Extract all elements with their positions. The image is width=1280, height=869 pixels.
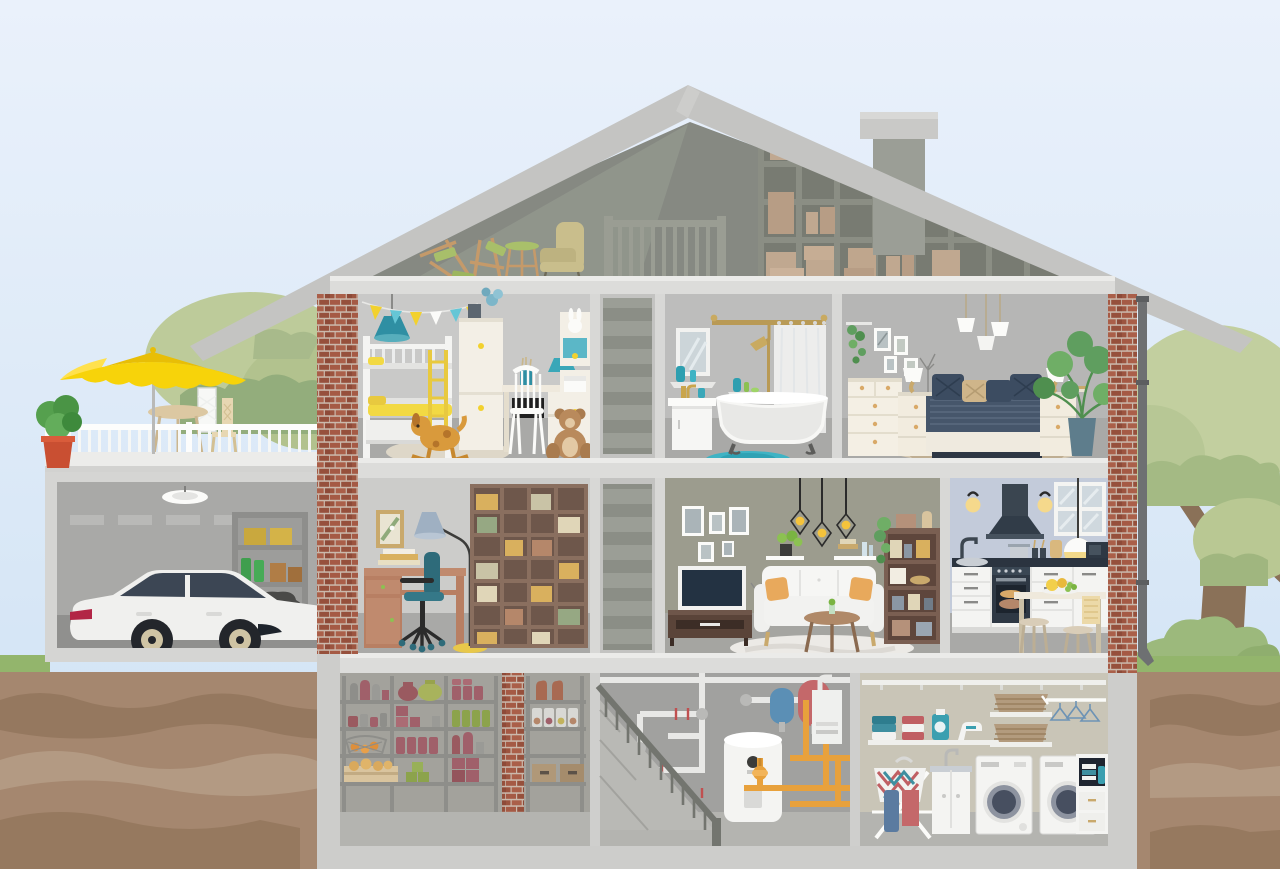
chest-of-drawers [848,378,902,456]
wall-divider [940,478,950,653]
pantry: Pantry cellar [340,673,590,846]
staircase-upper: Staircase to attic [590,294,665,458]
large-bookcase [470,484,588,648]
pillow [368,357,384,365]
orange-cushion [849,577,874,602]
wall-tv [678,566,746,610]
basement-wall-right [1108,673,1137,869]
bread-crate [344,759,398,783]
glass-wall-cabinet [1054,482,1106,536]
brick-column-left [317,294,358,654]
boiler-room: Boiler room [598,673,850,846]
brick-column-right [1108,294,1137,673]
jeans [884,790,899,832]
wall-divider [832,294,842,458]
red-towel [902,790,919,826]
house-cutaway-illustration: Cutaway cross-section illustration of a … [0,0,1280,869]
study: Study [358,478,590,653]
wall-picture [376,510,404,548]
first-floor: Study [358,478,1108,661]
brick-pillar [502,673,524,812]
yellow-box [270,528,292,545]
laundry-room: Laundry room [860,673,1108,846]
plant-pot [468,304,481,318]
kitchen: Kitchen [950,478,1108,653]
table-lamp [903,368,923,382]
basement-wall-left [317,648,340,869]
washing-machine-left [976,756,1032,834]
bedroom: Bedroom [842,294,1115,463]
desk-books [378,549,420,565]
cutting-board [1050,540,1062,558]
green-canister [254,560,264,582]
bathroom: Bathroom [665,294,832,469]
brown-box [270,563,286,582]
basement: Pantry cellar [317,648,1137,869]
foundation-slab [317,846,1137,869]
scene-canvas: Cutaway cross-section illustration of a … [0,0,1280,869]
staircase-lower: Staircase to second floor [590,478,665,653]
lawn-strip-left [0,655,50,673]
supply-cabinet [1076,754,1108,834]
box [896,514,916,528]
kids-room: Kids room [358,288,594,466]
living-room: Living room [665,478,940,661]
orange-cushion [765,577,790,602]
double-bed [926,374,1048,458]
wall-divider [850,673,860,846]
second-floor: Kids room [358,288,1115,470]
water-heater-tank [724,732,782,822]
wall-divider [590,673,600,846]
yellow-box [244,528,266,545]
garage: Garage [45,472,335,662]
